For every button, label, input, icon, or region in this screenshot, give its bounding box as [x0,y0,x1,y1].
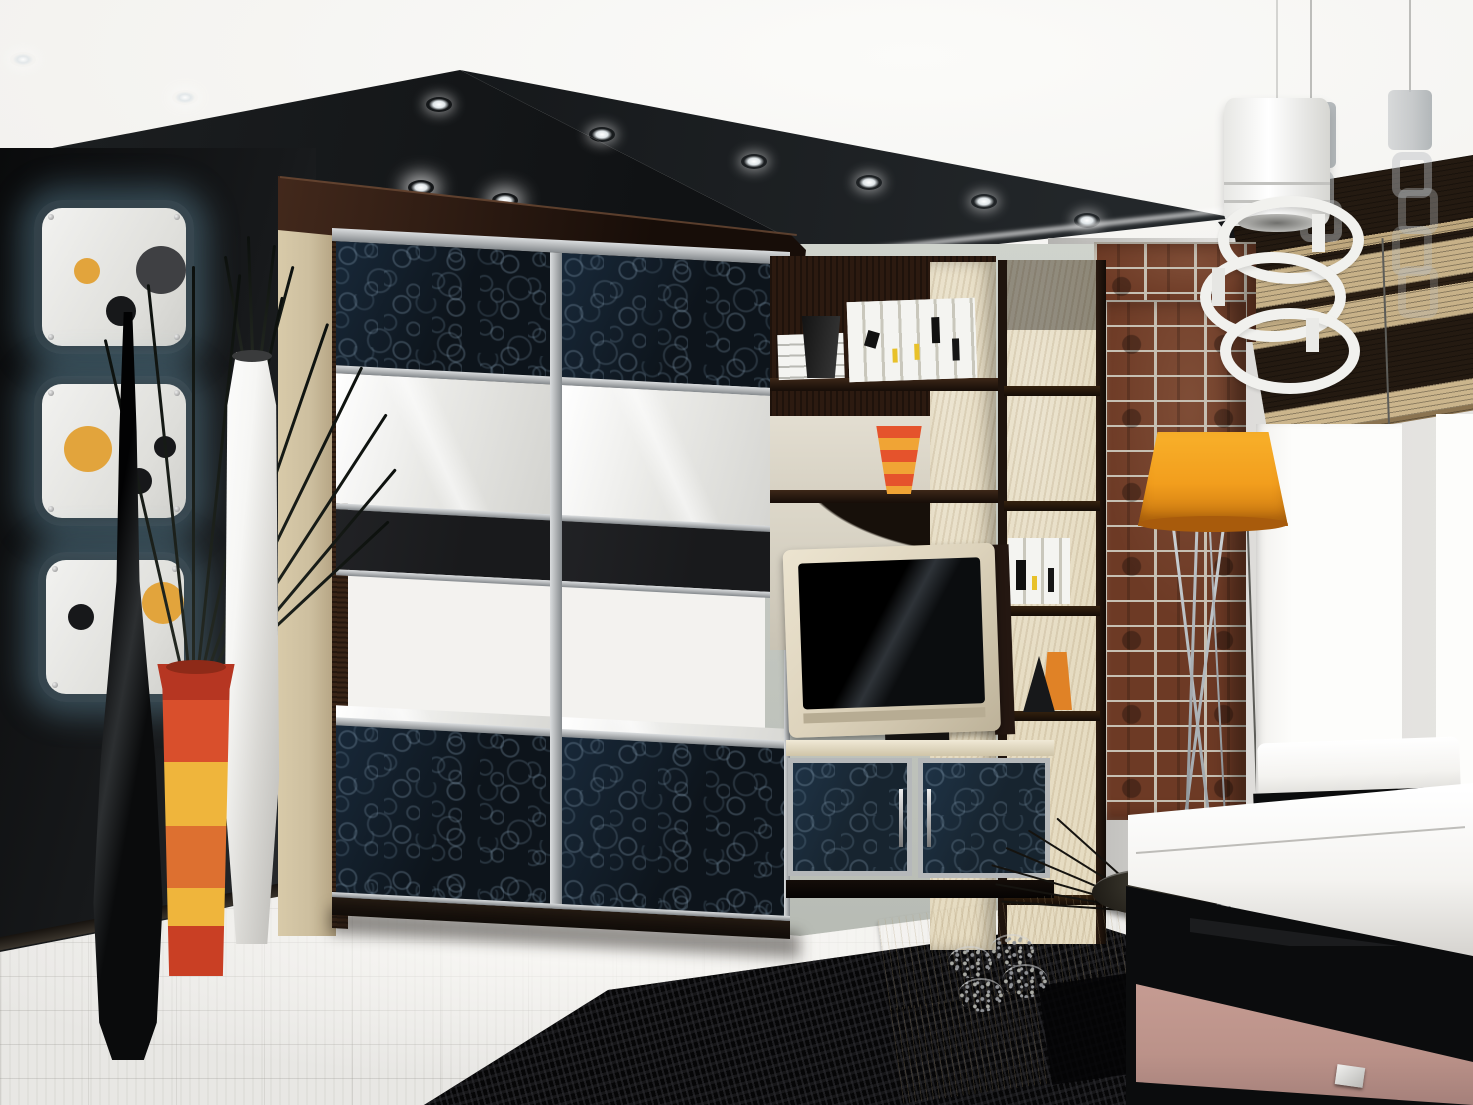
panel-circle-dark [136,246,186,294]
panel-screw [48,390,54,396]
door-panel-crackle-bottom [562,737,786,921]
sliding-door-right[interactable] [562,253,786,921]
cabinet-door-handle[interactable] [927,789,931,847]
panel-circle-black [68,604,94,630]
panel-screw [48,334,54,340]
tv-screen[interactable] [798,557,985,709]
spotlight [971,194,997,209]
panel-circle-orange [64,426,112,472]
bookcase-shelf [1004,606,1100,616]
small-bowl [948,946,992,978]
book-mark-black [1016,560,1026,590]
bookcase-top-shadow [1006,260,1098,330]
book-mark-yellow [1032,576,1037,590]
living-room-render [0,0,1473,1105]
panel-screw [52,682,58,688]
wall-art-panel-top [34,200,194,354]
door-panel-crackle-top [562,253,786,389]
pendant-ring-connector [1212,268,1225,306]
white-vase-opening [232,350,272,362]
pendant-ring-connector [1306,318,1319,352]
book-mark-yellow [914,344,920,360]
spotlight [426,97,452,112]
cabinet-glass-door-left[interactable] [788,758,912,876]
tv-unit [783,542,1022,750]
panel-circle-orange [74,258,100,284]
pendant-ring-connector [1312,214,1325,252]
cabinet-top [786,740,1054,756]
panel-screw [174,390,180,396]
spotlight [1074,213,1100,228]
grey-pendant-lamp-far [1388,90,1432,150]
book-mark-black [931,317,940,343]
spotlight [589,127,615,142]
striped-vase-opening [166,660,226,674]
cabinet-door-glass [793,763,907,871]
small-upright-books [1008,538,1070,604]
panel-screw [52,566,58,572]
panel-screw [174,214,180,220]
pendant-ring [1220,308,1360,394]
pendant-cord-grey [1409,0,1411,92]
grass-blade [192,266,195,696]
book-mark-black [864,330,880,349]
bookcase-shelf [1004,386,1100,396]
book-mark-black [1048,568,1054,592]
bookcase-shelf [1004,501,1100,511]
door-panel-crackle-top [336,241,552,376]
drawer-handle[interactable] [1335,1064,1366,1088]
wardrobe-sliding-doors[interactable] [332,228,790,952]
sliding-door-left[interactable] [336,241,552,908]
door-panel-crackle-bottom [336,725,552,908]
cabinet-door-handle[interactable] [899,789,903,847]
panel-screw [174,506,180,512]
door-panel-white [562,385,786,527]
grey-pendant-link [1398,266,1438,318]
book-mark-black [952,338,960,360]
pendant-cord-white [1276,0,1278,100]
small-bowl [958,978,1004,1012]
door-panel-black [336,509,552,580]
upright-books [847,298,978,382]
floor-lamp-shade-rim [1138,516,1288,532]
spotlight [856,175,882,190]
book-mark-yellow [892,349,897,363]
spotlight [172,90,198,105]
small-bowl [1002,964,1048,998]
spotlight [10,52,36,67]
panel-screw [174,334,180,340]
pendant-drum-slit [1224,182,1330,185]
unit-shelf [770,490,998,503]
door-center-stile [550,252,562,909]
small-bowl [990,934,1034,966]
panel-screw [48,214,54,220]
panel-screw [48,506,54,512]
floor-lamp-shade [1138,432,1288,526]
pendant-cord-grey [1310,0,1312,104]
bookcase-side [1096,260,1106,944]
spotlight [741,154,767,169]
